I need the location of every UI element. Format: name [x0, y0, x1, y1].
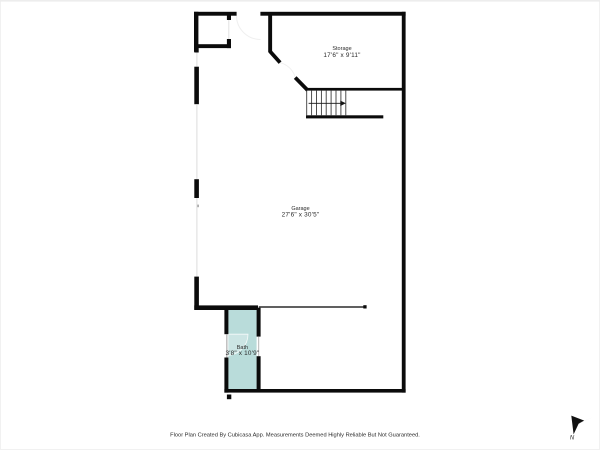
svg-text:27'6" x 30'5": 27'6" x 30'5" — [282, 212, 320, 219]
svg-text:Floor Plan Created By Cubicasa: Floor Plan Created By Cubicasa App. Meas… — [170, 433, 420, 439]
svg-text:3'8" x 10'9": 3'8" x 10'9" — [225, 350, 259, 357]
svg-text:N: N — [570, 436, 575, 442]
svg-text:17'6" x 9'11": 17'6" x 9'11" — [323, 52, 360, 59]
